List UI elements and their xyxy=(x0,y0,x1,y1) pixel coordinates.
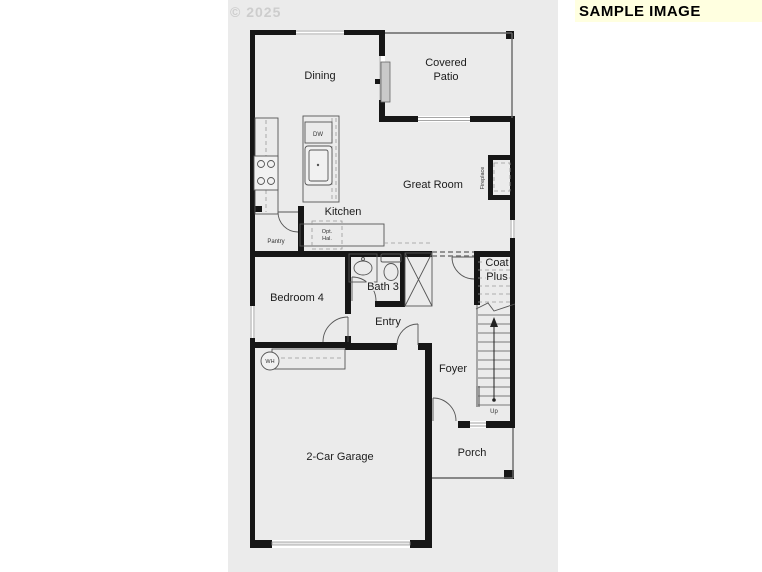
pantry-label: Pantry xyxy=(267,239,284,245)
room-label-kitchen: Kitchen xyxy=(325,206,362,218)
slider-stop xyxy=(375,79,380,84)
fireplace-label: Fireplace xyxy=(480,167,486,190)
patio-window xyxy=(418,116,470,122)
stair-stringer xyxy=(476,386,480,407)
sliding-door-panel xyxy=(381,62,390,102)
wall-segment xyxy=(379,30,385,56)
wall-segment xyxy=(345,343,397,350)
stove xyxy=(254,156,278,190)
stairs-up-label: Up xyxy=(490,409,498,415)
wall-segment xyxy=(344,30,385,35)
sample-image-badge-text: SAMPLE IMAGE xyxy=(575,3,701,20)
wall-segment xyxy=(418,343,432,350)
room-label-garage: 2-Car Garage xyxy=(306,451,373,463)
room-label-covered-patio-1: Covered xyxy=(425,57,467,69)
dishwasher-label: DW xyxy=(313,132,323,138)
floorplan-page: Dining Covered Patio Great Room Kitchen … xyxy=(0,0,762,572)
wall-segment xyxy=(250,206,262,212)
wall-segment xyxy=(510,238,515,428)
room-label-bath-3: Bath 3 xyxy=(367,281,399,293)
copyright-watermark: © 2025 xyxy=(230,4,281,20)
wall-segment xyxy=(345,251,351,314)
fireplace-wall xyxy=(488,155,493,200)
sample-image-badge: SAMPLE IMAGE xyxy=(575,0,762,22)
water-heater-label: WH xyxy=(265,359,274,365)
room-label-porch: Porch xyxy=(458,447,487,459)
room-label-dining: Dining xyxy=(304,70,335,82)
wall-segment xyxy=(425,345,432,548)
room-label-coat-plus-1: Coat xyxy=(485,257,508,269)
room-label-coat-plus-2: Plus xyxy=(486,271,508,283)
wall-segment xyxy=(375,301,400,307)
garage-door xyxy=(272,542,410,545)
room-label-foyer: Foyer xyxy=(439,363,467,375)
wall-segment xyxy=(379,100,385,116)
room-label-great-room: Great Room xyxy=(403,179,463,191)
up-arrow-start xyxy=(492,398,496,402)
wall-segment xyxy=(486,421,515,428)
wall-segment xyxy=(250,342,345,348)
fireplace-wall xyxy=(490,195,514,200)
sink-drain xyxy=(317,164,319,166)
wall-segment xyxy=(379,116,418,122)
wall-segment xyxy=(250,338,255,548)
wall-segment xyxy=(458,421,470,428)
wall-segment xyxy=(250,30,296,35)
floorplan-drawing: Dining Covered Patio Great Room Kitchen … xyxy=(0,0,762,572)
room-label-covered-patio-2: Patio xyxy=(433,71,458,83)
foyer-window xyxy=(470,421,486,428)
room-label-bedroom-4: Bedroom 4 xyxy=(270,292,324,304)
opt-hall-label-2: Hal. xyxy=(322,236,332,242)
wall-segment xyxy=(470,116,515,122)
patio-post xyxy=(506,31,514,39)
opt-hall-label-1: Opt. xyxy=(322,229,333,235)
room-label-entry: Entry xyxy=(375,316,401,328)
fireplace-wall xyxy=(490,155,514,160)
wall-segment xyxy=(510,122,515,220)
